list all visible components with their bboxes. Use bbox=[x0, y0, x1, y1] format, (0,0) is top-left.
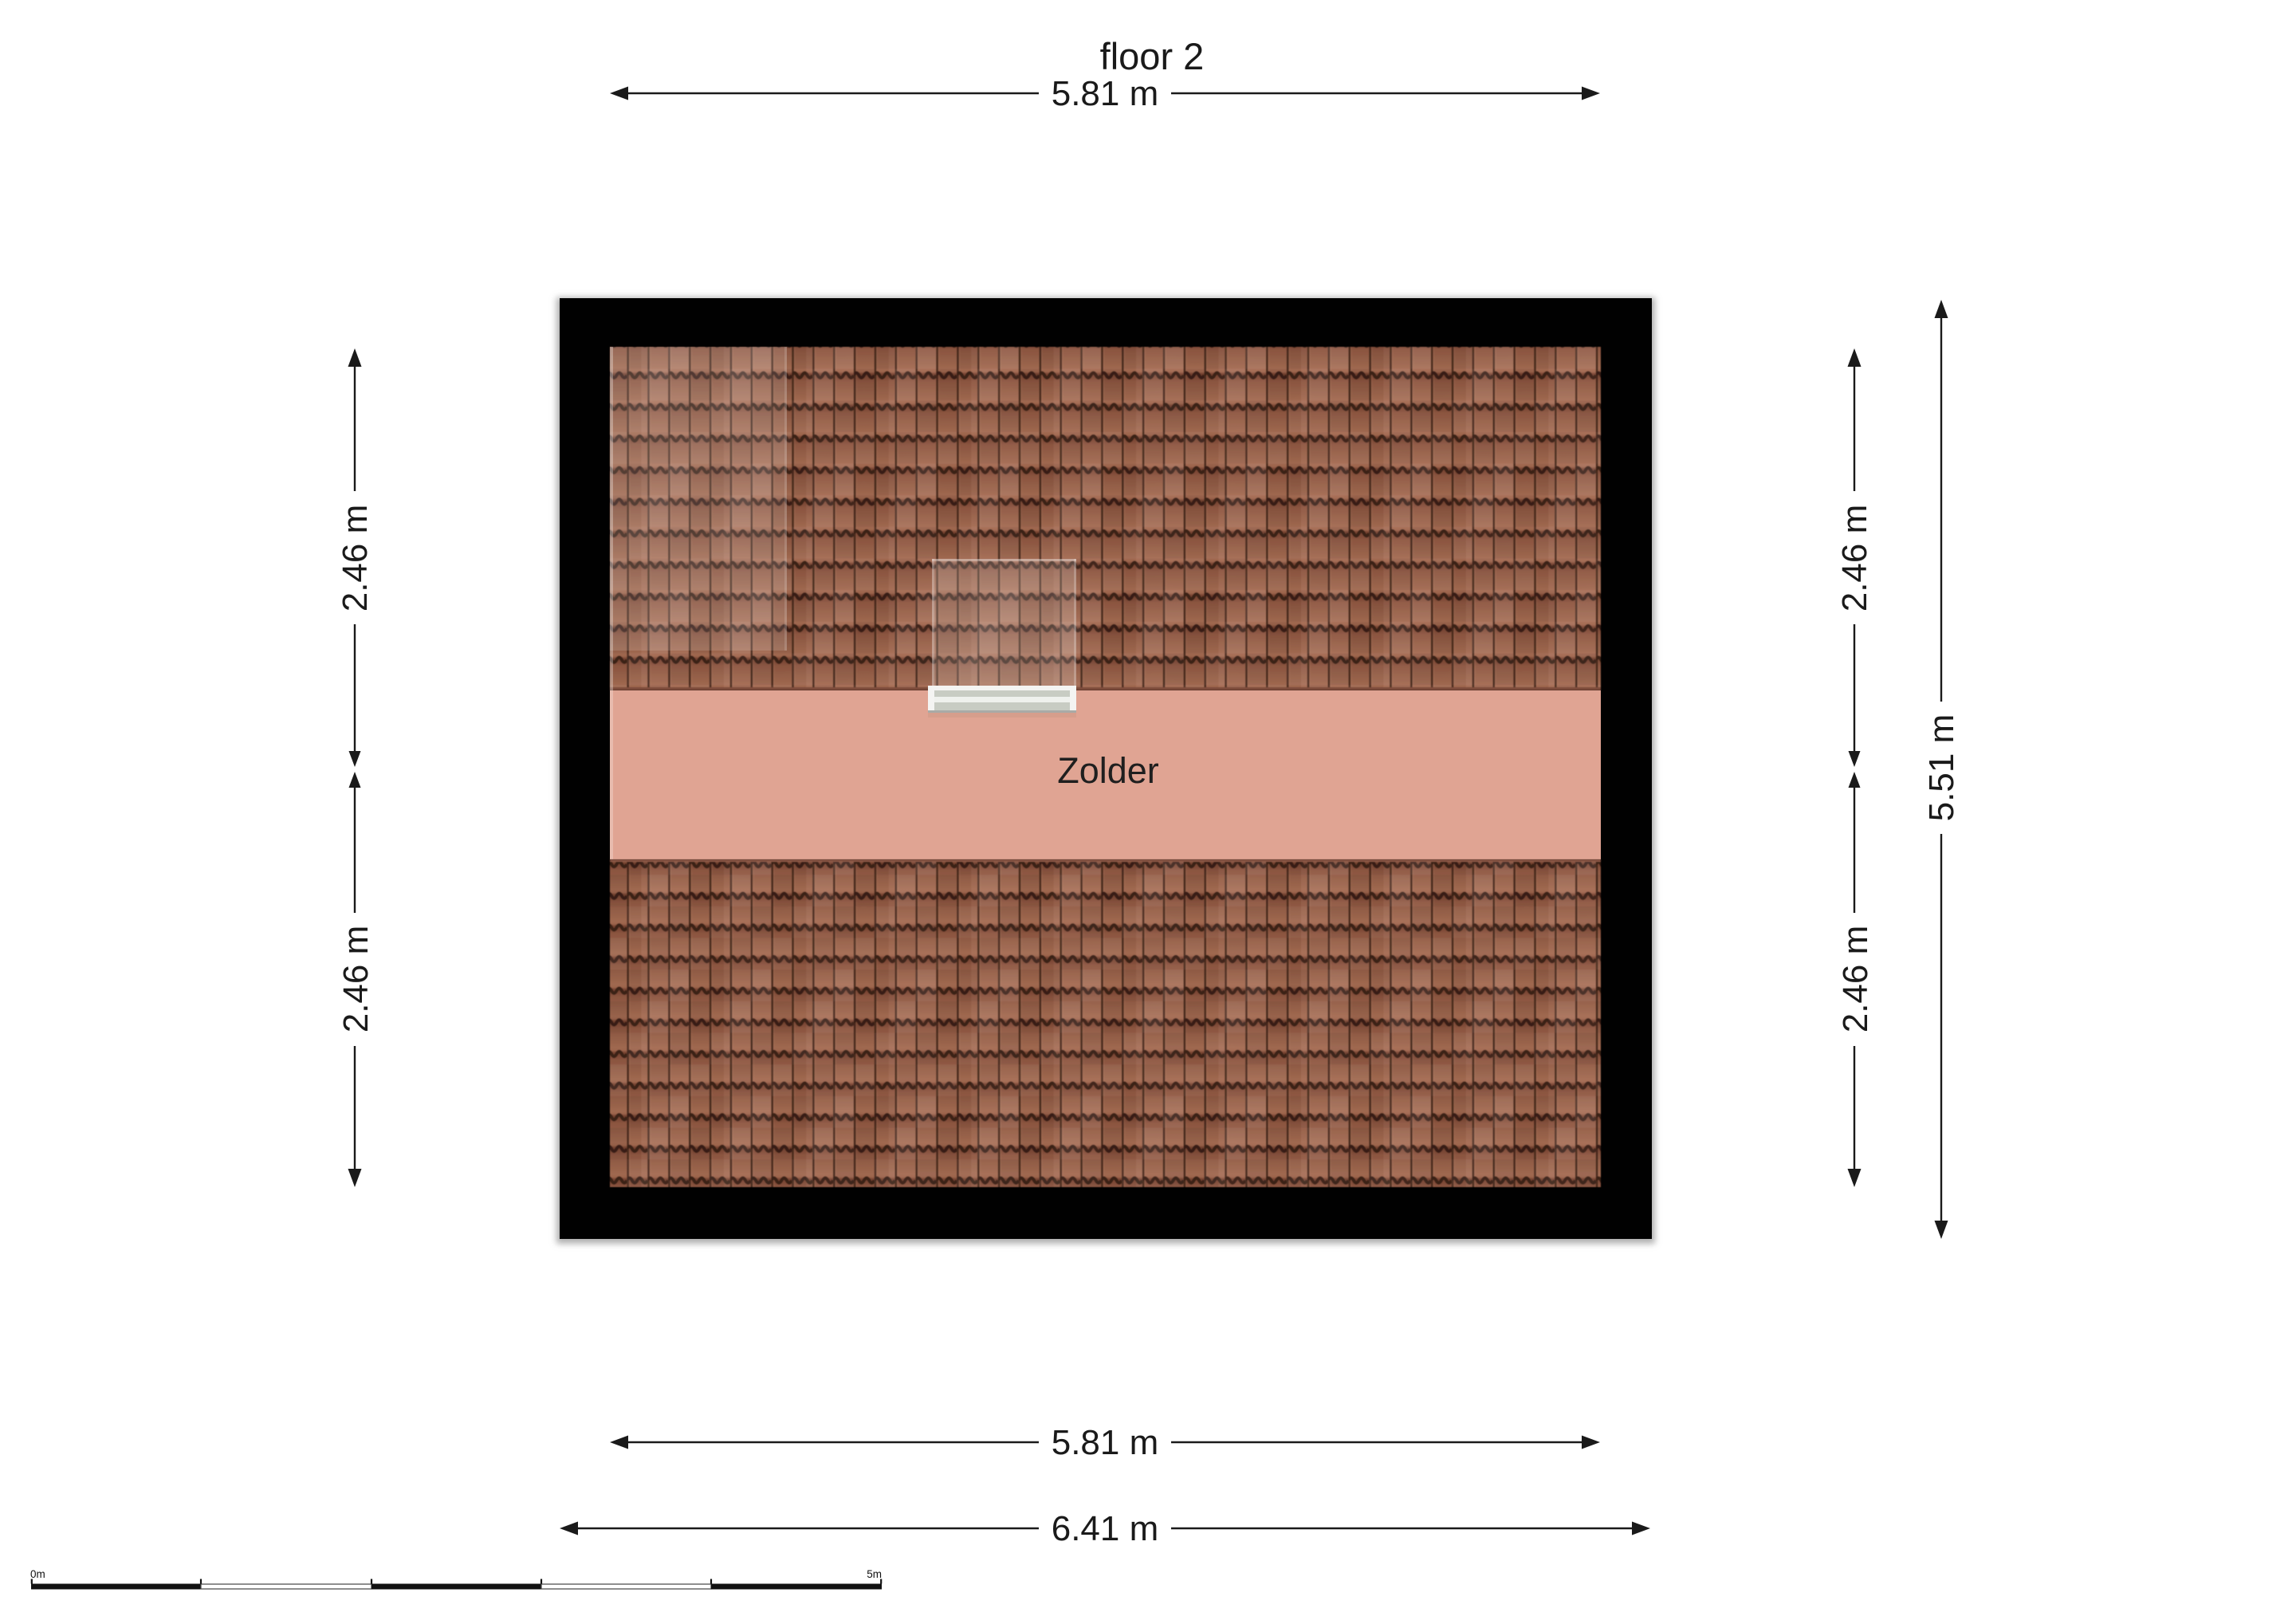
svg-text:2.46 m: 2.46 m bbox=[1835, 505, 1874, 612]
svg-text:5.81 m: 5.81 m bbox=[1052, 1423, 1159, 1462]
svg-text:6.41 m: 6.41 m bbox=[1052, 1509, 1159, 1548]
svg-text:Zolder: Zolder bbox=[1057, 750, 1159, 791]
svg-text:floor 2: floor 2 bbox=[1100, 35, 1205, 77]
svg-text:5m: 5m bbox=[867, 1568, 882, 1580]
svg-text:5.81 m: 5.81 m bbox=[1052, 74, 1159, 113]
svg-text:2.46 m: 2.46 m bbox=[1836, 926, 1875, 1033]
svg-text:2.46 m: 2.46 m bbox=[336, 926, 375, 1033]
svg-text:0m: 0m bbox=[30, 1568, 45, 1580]
svg-text:2.46 m: 2.46 m bbox=[336, 505, 375, 612]
svg-text:5.51 m: 5.51 m bbox=[1922, 714, 1961, 822]
